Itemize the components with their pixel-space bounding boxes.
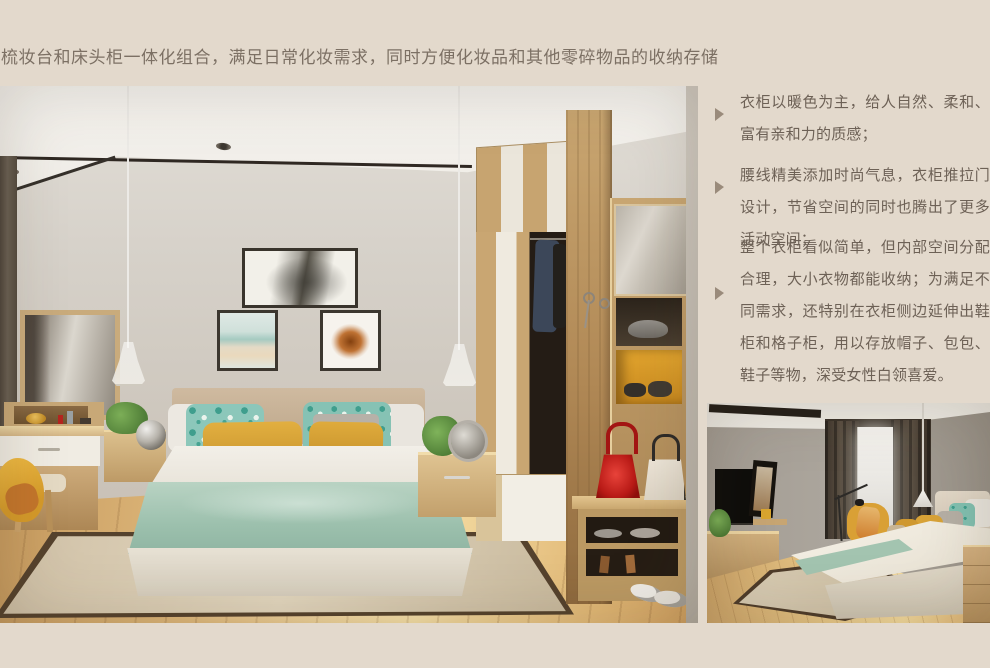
bed-front [120,548,480,596]
floating-shelf [753,519,787,525]
wall-art-large [242,248,358,308]
secondary-bedroom-photo [707,403,990,623]
cosmetics [80,418,91,424]
plant [709,509,731,537]
shoes-dark [648,381,672,397]
cabinet-mirror [614,204,688,296]
nightstand-right [418,452,496,517]
feature-item: 整个衣柜看似简单，但内部空间分配合理，大小衣物都能收纳；为满足不同需求，还特别在… [707,232,990,392]
wardrobe-upper-cabinets [476,141,570,242]
cosmetics [58,415,63,424]
product-detail-page: { "page": { "background_color": "#e3d9cc… [0,0,990,668]
main-bedroom-photo [0,86,698,623]
white-handbag-handle [652,434,680,461]
shoes-dark [624,383,646,397]
dresser-top [0,426,104,436]
heel-shoe [599,556,610,574]
cosmetics [67,411,73,424]
lamp-cord [127,86,129,348]
drawer-handle [444,476,470,479]
feature-text: 整个衣柜看似简单，但内部空间分配合理，大小衣物都能收纳；为满足不同需求，还特别在… [740,232,990,392]
drawer-handle [38,448,60,451]
wall-hook [599,298,610,309]
feature-text: 衣柜以暖色为主，给人自然、柔和、富有亲和力的质感； [740,87,990,151]
floor-lamp-head [855,499,864,506]
slipper-gray [630,528,660,538]
decor-sphere [136,420,166,450]
page-title: 梳妆台和床头柜一体化组合，满足日常化妆需求，同时方便化妆品和其他零碎物品的收纳存… [1,43,989,68]
hanging-clothes [553,244,566,328]
right-triangle-bullet-icon [715,181,724,194]
right-wall [686,86,698,623]
cubby-orange [616,350,682,404]
lamp-cord [922,403,924,491]
right-triangle-bullet-icon [715,287,724,300]
right-triangle-bullet-icon [715,108,724,121]
heel-shoe [625,555,636,574]
nightstand [963,545,990,623]
yellow-box-decor [761,509,771,519]
slipper-gray [594,529,622,538]
wall-art-small-left [217,310,278,371]
gold-bowl-decor [26,413,46,424]
bed-top-sheet [150,446,460,486]
feature-item: 衣柜以暖色为主，给人自然、柔和、富有亲和力的质感； [707,87,990,151]
red-handbag-handle [606,422,638,454]
dresser-niche [14,406,88,424]
hat [628,320,668,338]
lamp-cord [458,86,460,350]
wall-art-small-right [320,310,381,371]
